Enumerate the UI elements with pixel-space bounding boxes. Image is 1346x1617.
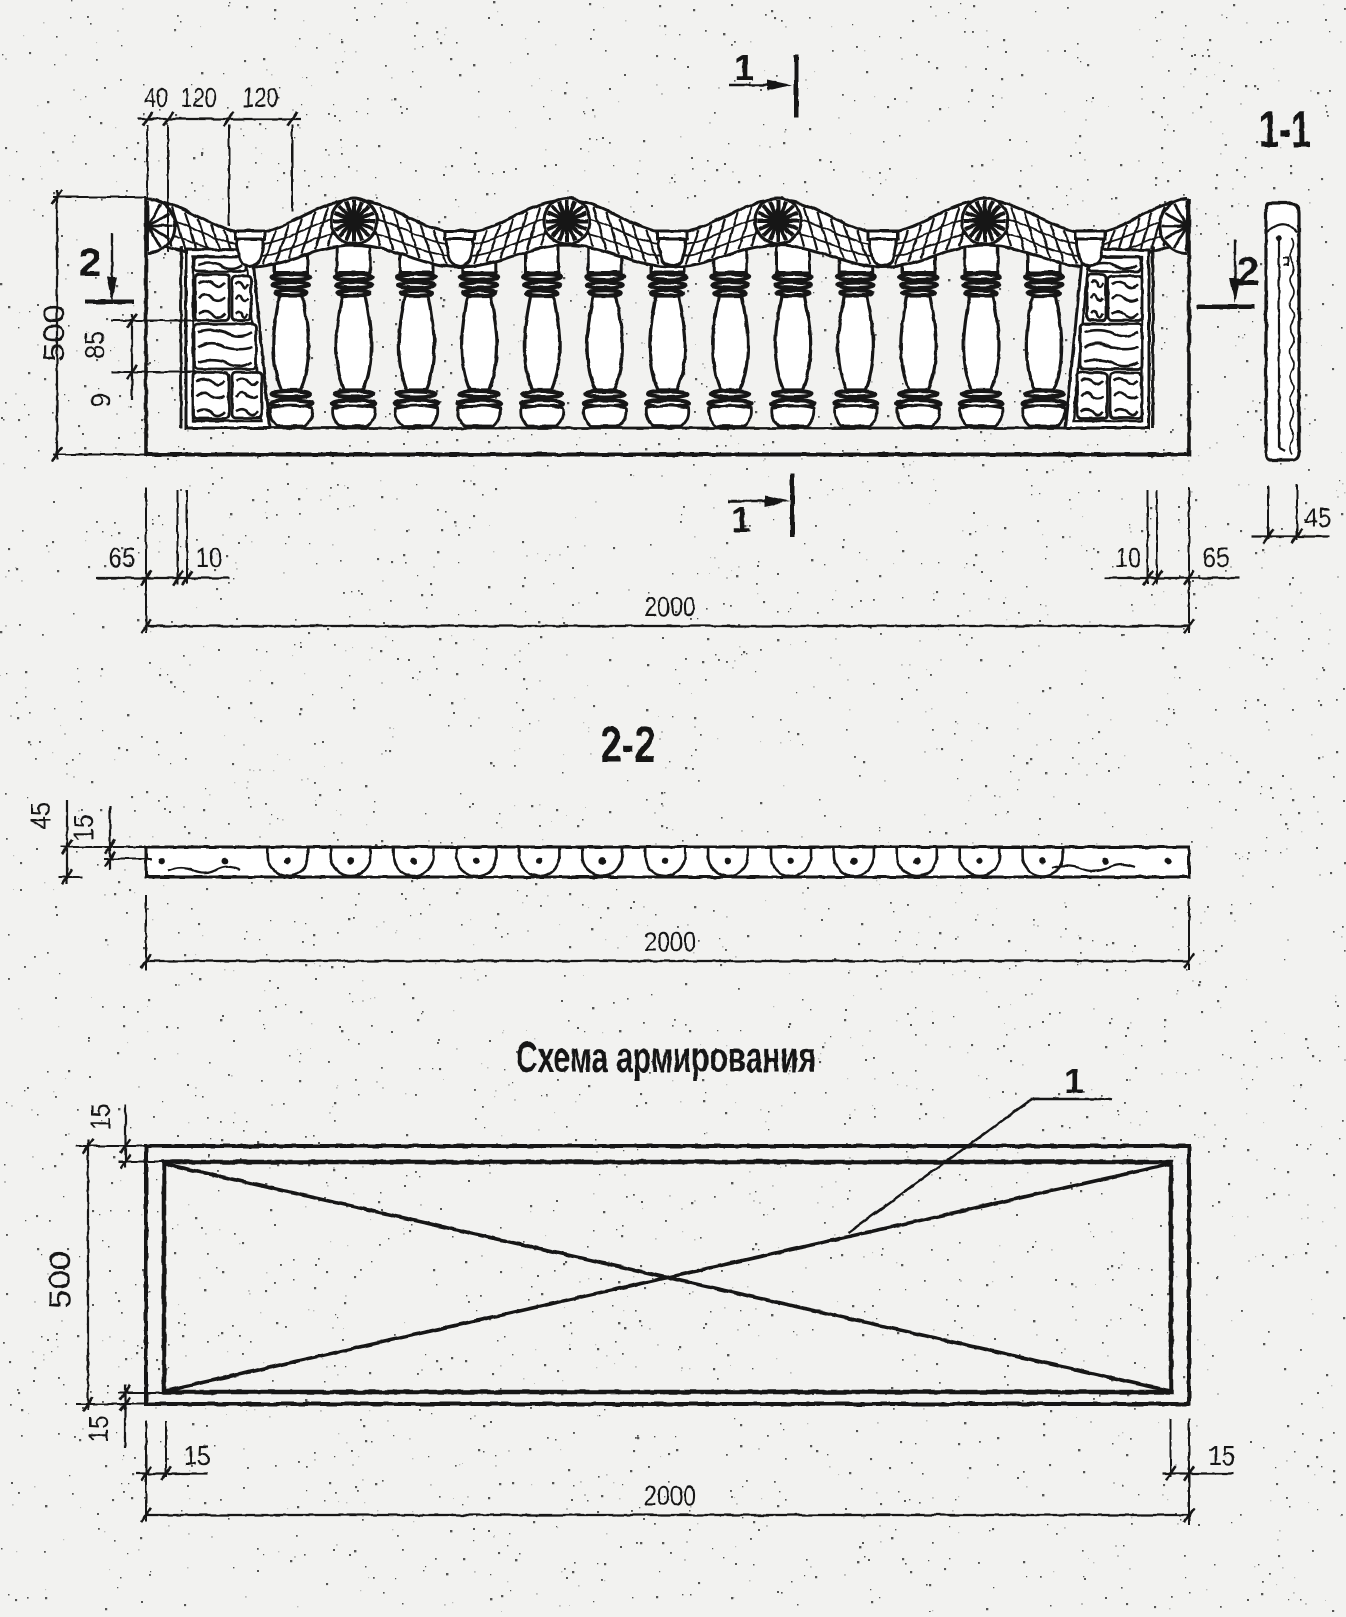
svg-text:85: 85 <box>79 331 110 359</box>
svg-text:65: 65 <box>109 542 136 573</box>
svg-text:15: 15 <box>83 1416 114 1443</box>
svg-text:Схема армирования: Схема армирования <box>516 1033 816 1082</box>
svg-text:10: 10 <box>1115 542 1141 573</box>
svg-text:120: 120 <box>181 82 217 113</box>
svg-text:15: 15 <box>68 815 99 842</box>
svg-text:15: 15 <box>1209 1440 1236 1471</box>
svg-text:2000: 2000 <box>644 591 696 622</box>
svg-text:9: 9 <box>85 393 116 407</box>
svg-text:2: 2 <box>1237 250 1259 294</box>
svg-text:2: 2 <box>79 241 101 285</box>
svg-text:40: 40 <box>144 82 168 113</box>
svg-text:45: 45 <box>25 803 56 830</box>
svg-text:15: 15 <box>85 1104 116 1131</box>
svg-text:500: 500 <box>38 304 71 362</box>
svg-text:2-2: 2-2 <box>601 716 656 774</box>
svg-text:1-1: 1-1 <box>1259 101 1311 159</box>
svg-text:500: 500 <box>44 1251 77 1309</box>
svg-text:2000: 2000 <box>644 926 696 957</box>
svg-text:1: 1 <box>734 47 754 88</box>
svg-text:2000: 2000 <box>644 1480 696 1511</box>
svg-text:1: 1 <box>1065 1063 1084 1101</box>
svg-text:1: 1 <box>731 499 751 540</box>
svg-text:65: 65 <box>1203 542 1230 573</box>
svg-text:120: 120 <box>243 82 279 113</box>
svg-text:45: 45 <box>1305 502 1332 533</box>
svg-text:10: 10 <box>196 542 222 573</box>
svg-text:15: 15 <box>184 1440 211 1471</box>
